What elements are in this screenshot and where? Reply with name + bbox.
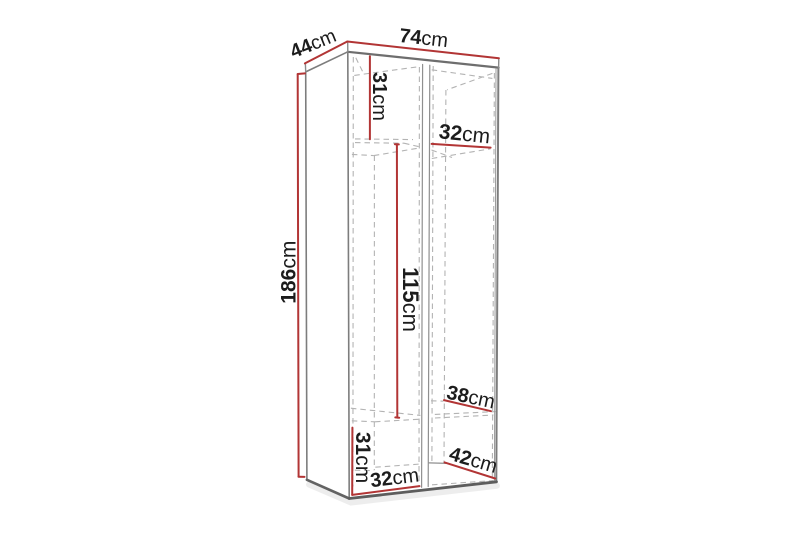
svg-text:186cm: 186cm xyxy=(277,241,300,304)
svg-text:31cm: 31cm xyxy=(368,72,390,121)
svg-text:115cm: 115cm xyxy=(398,267,423,332)
